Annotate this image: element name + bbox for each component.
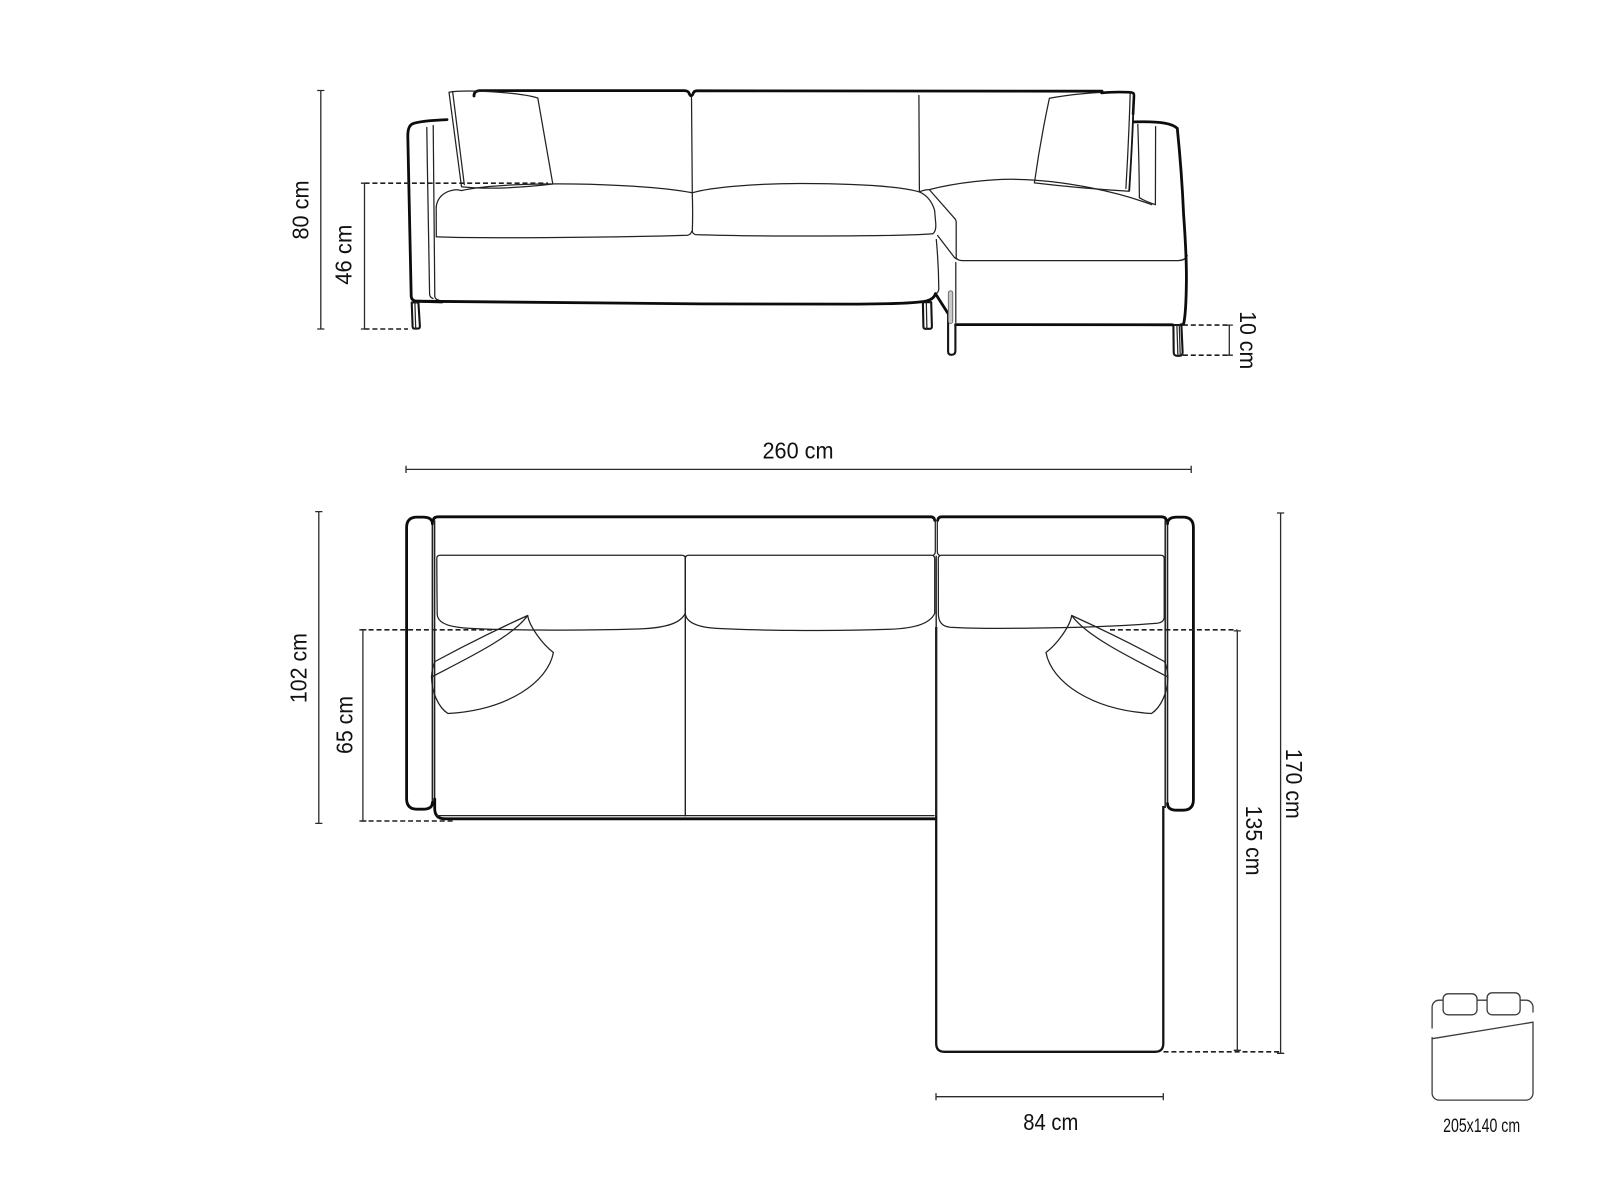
svg-text:102 cm: 102 cm <box>286 633 312 703</box>
svg-text:10 cm: 10 cm <box>1235 311 1261 369</box>
svg-text:84 cm: 84 cm <box>1023 1109 1078 1135</box>
svg-text:135 cm: 135 cm <box>1241 806 1267 876</box>
svg-text:205x140 cm: 205x140 cm <box>1443 1116 1520 1137</box>
svg-text:170 cm: 170 cm <box>1281 749 1307 819</box>
svg-text:46 cm: 46 cm <box>331 225 357 285</box>
svg-text:260 cm: 260 cm <box>763 438 834 464</box>
svg-text:80 cm: 80 cm <box>287 181 313 240</box>
svg-text:65 cm: 65 cm <box>332 696 358 754</box>
